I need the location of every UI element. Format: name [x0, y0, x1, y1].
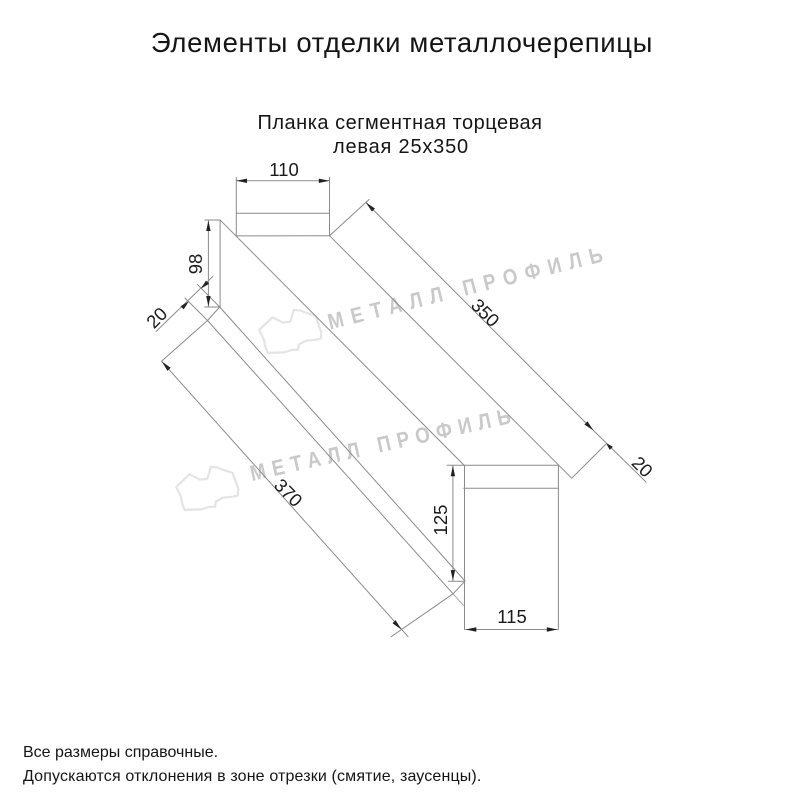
- svg-text:98: 98: [185, 254, 206, 275]
- svg-text:Элементы отделки металлочерепи: Элементы отделки металлочерепицы: [151, 27, 653, 58]
- svg-text:Планка сегментная торцевая: Планка сегментная торцевая: [257, 112, 542, 134]
- svg-text:125: 125: [430, 505, 451, 536]
- svg-text:левая 25х350: левая 25х350: [333, 136, 469, 158]
- svg-text:110: 110: [269, 159, 299, 180]
- svg-text:Все размеры справочные.: Все размеры справочные.: [23, 744, 218, 761]
- svg-text:115: 115: [497, 606, 527, 627]
- svg-text:Допускаются отклонения в зоне: Допускаются отклонения в зоне отрезки (с…: [23, 768, 482, 785]
